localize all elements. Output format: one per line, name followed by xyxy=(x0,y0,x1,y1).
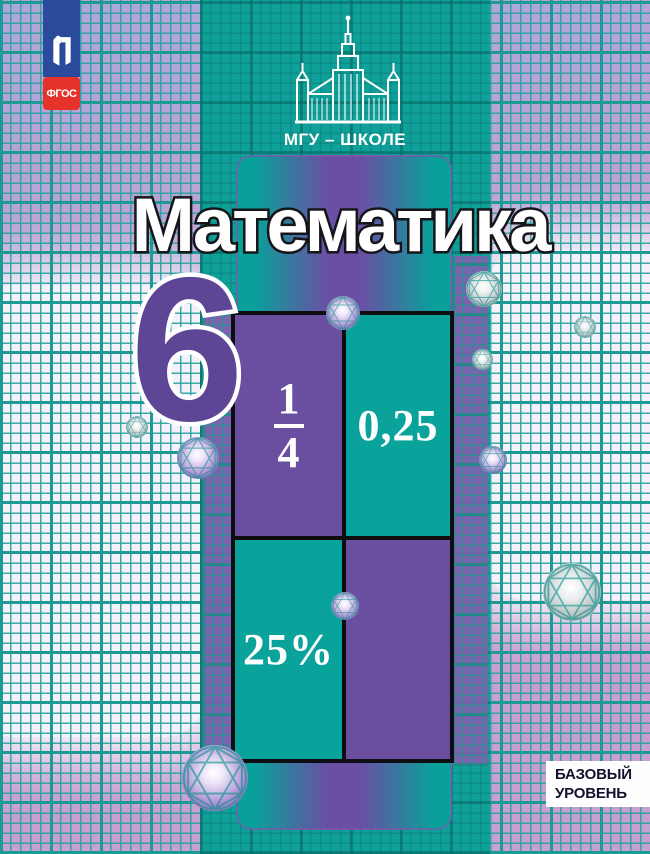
decimal-value: 0,25 xyxy=(358,400,439,451)
book-title: Математика xyxy=(50,180,630,275)
series-banner: МГУ – ШКОЛЕ xyxy=(200,130,490,150)
molecule-sphere-icon xyxy=(331,592,359,620)
molecule-sphere-icon xyxy=(326,296,360,330)
molecule-sphere-icon xyxy=(472,349,493,370)
fraction-denominator: 4 xyxy=(278,428,300,477)
level-line1: БАЗОВЫЙ xyxy=(555,765,650,784)
table-cell-percent: 25% xyxy=(235,540,342,759)
book-cover: 1 4 0,25 25% Математика 6 xyxy=(0,0,650,854)
molecule-sphere-icon xyxy=(177,437,219,479)
fraction-numerator: 1 xyxy=(278,374,300,423)
grade-number: 6 xyxy=(95,252,280,442)
percent-value: 25% xyxy=(243,624,334,675)
table-cell-decimal: 0,25 xyxy=(346,315,450,536)
molecule-sphere-icon xyxy=(574,316,596,338)
publisher-badge xyxy=(43,0,80,77)
series-banner-label: МГУ – ШКОЛЕ xyxy=(284,130,406,149)
grade-number-text: 6 xyxy=(130,252,244,442)
white-grid-region-right xyxy=(486,250,650,600)
table-cell-empty xyxy=(346,540,450,759)
band-shadow-strip-right xyxy=(452,256,488,766)
level-badge: БАЗОВЫЙ УРОВЕНЬ xyxy=(546,761,650,807)
fgos-badge: ФГОС xyxy=(43,77,80,110)
level-line2: УРОВЕНЬ xyxy=(555,784,650,803)
prosveshchenie-logo-icon xyxy=(49,33,75,69)
book-title-text: Математика xyxy=(132,183,552,268)
molecule-sphere-icon xyxy=(479,446,507,474)
molecule-sphere-icon xyxy=(126,416,148,438)
molecule-sphere-icon xyxy=(543,563,601,621)
mgu-building-icon xyxy=(292,14,404,128)
molecule-sphere-icon xyxy=(182,745,248,811)
fgos-label: ФГОС xyxy=(47,88,77,100)
molecule-sphere-icon xyxy=(466,271,502,307)
